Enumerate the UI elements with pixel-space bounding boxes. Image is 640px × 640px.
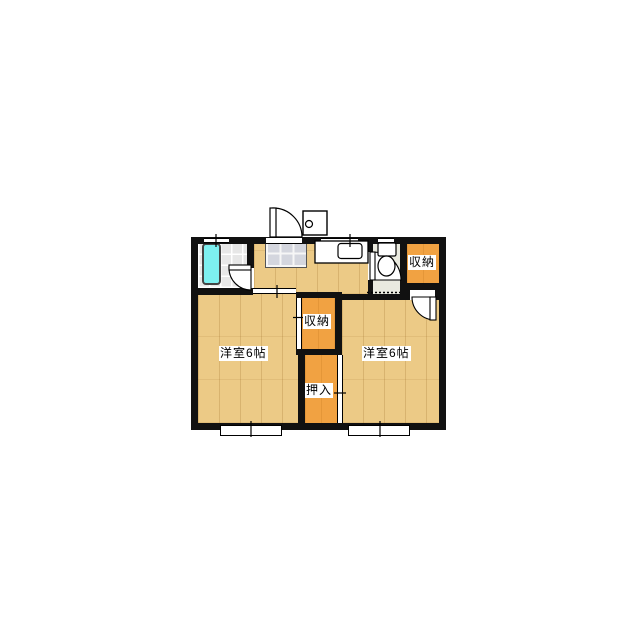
bathroom-door-arc xyxy=(229,268,251,290)
toilet-bowl-icon xyxy=(378,256,395,276)
storage-topright-label: 収納 xyxy=(408,255,436,270)
toilet-tank-icon xyxy=(378,243,396,256)
bathroom-door-leaf xyxy=(229,265,251,270)
oshiire-label: 押入 xyxy=(305,383,333,398)
floorplan: 洋室6帖 洋室6帖 収納 押入 収納 xyxy=(191,197,446,437)
entrance-door-leaf xyxy=(270,208,276,237)
water-heater-knob-icon xyxy=(306,221,313,228)
storage-door-leaf xyxy=(430,297,436,320)
room-left-label: 洋室6帖 xyxy=(219,346,268,361)
page: 洋室6帖 洋室6帖 収納 押入 収納 xyxy=(0,0,640,640)
toilet-door-leaf xyxy=(370,252,375,280)
room-right-label: 洋室6帖 xyxy=(362,346,411,361)
storage-mid-label: 収納 xyxy=(303,314,331,329)
entrance-door-arc xyxy=(273,208,302,237)
